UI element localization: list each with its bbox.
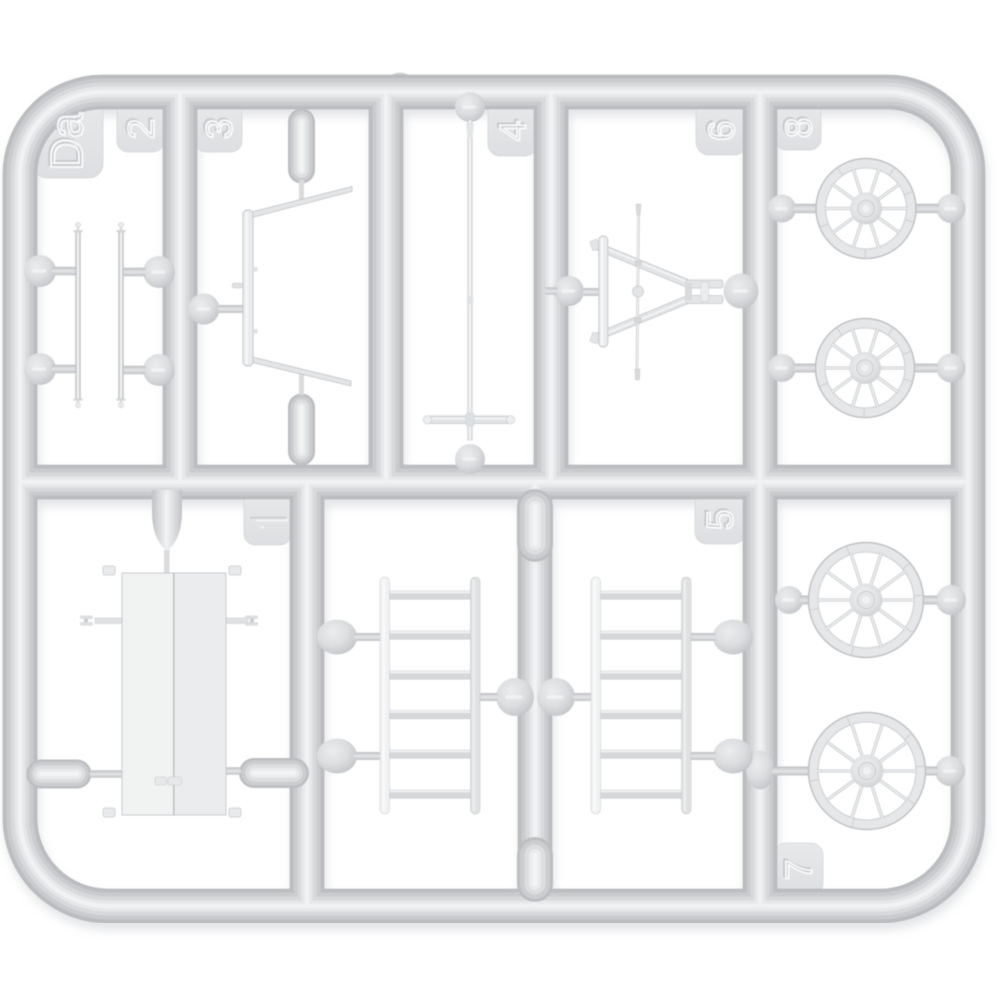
svg-text:4: 4 bbox=[493, 121, 534, 142]
svg-text:6: 6 bbox=[702, 121, 743, 142]
svg-text:3: 3 bbox=[199, 119, 240, 140]
svg-text:2: 2 bbox=[121, 119, 162, 140]
svg-text:8: 8 bbox=[779, 118, 820, 139]
svg-text:7: 7 bbox=[779, 860, 820, 881]
svg-text:5: 5 bbox=[700, 510, 741, 531]
svg-text:Da: Da bbox=[42, 112, 93, 170]
